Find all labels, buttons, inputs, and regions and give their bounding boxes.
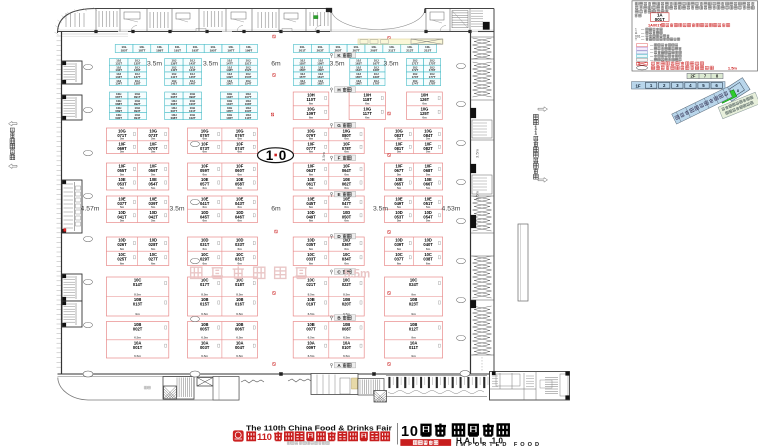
svg-text:004T: 004T bbox=[235, 345, 245, 350]
svg-text:8.5m: 8.5m bbox=[201, 292, 208, 296]
svg-text:008T: 008T bbox=[342, 327, 352, 332]
svg-text:001T: 001T bbox=[655, 17, 665, 22]
svg-text:6m: 6m bbox=[271, 206, 281, 213]
svg-text:5m: 5m bbox=[120, 172, 125, 176]
svg-text:146T: 146T bbox=[189, 82, 196, 86]
svg-text:110: 110 bbox=[257, 432, 272, 443]
svg-text:9m: 9m bbox=[411, 354, 416, 358]
svg-text:6m: 6m bbox=[344, 137, 349, 141]
svg-text:3.5m: 3.5m bbox=[383, 61, 398, 68]
svg-text:6m: 6m bbox=[238, 247, 243, 251]
svg-text:5m: 5m bbox=[397, 205, 402, 209]
svg-text:5m: 5m bbox=[397, 137, 402, 141]
svg-text:012T: 012T bbox=[409, 327, 419, 332]
svg-text:199T: 199T bbox=[245, 49, 252, 53]
svg-text:6m: 6m bbox=[151, 247, 156, 251]
svg-text:195T: 195T bbox=[210, 49, 217, 53]
svg-text:213T: 213T bbox=[406, 49, 413, 53]
svg-text:6.5m: 6.5m bbox=[308, 312, 315, 316]
svg-text:010T: 010T bbox=[342, 345, 352, 350]
svg-text:106T: 106T bbox=[226, 116, 233, 120]
svg-text:1.5m: 1.5m bbox=[728, 65, 738, 70]
svg-text:007T: 007T bbox=[306, 327, 316, 332]
svg-text:3.5m: 3.5m bbox=[329, 61, 344, 68]
svg-text:6m: 6m bbox=[238, 137, 243, 141]
svg-text:6m: 6m bbox=[203, 186, 208, 190]
svg-text:4.57m: 4.57m bbox=[81, 206, 100, 213]
svg-text:6m: 6m bbox=[344, 186, 349, 190]
svg-text:5m: 5m bbox=[426, 172, 431, 176]
svg-text:5m: 5m bbox=[426, 137, 431, 141]
svg-text:142T: 142T bbox=[171, 82, 178, 86]
svg-text:5m: 5m bbox=[151, 149, 156, 153]
svg-text:5m: 5m bbox=[120, 218, 125, 222]
svg-text:018T: 018T bbox=[235, 282, 245, 287]
svg-text:6m: 6m bbox=[238, 149, 243, 153]
svg-text:6.5m: 6.5m bbox=[134, 354, 141, 358]
svg-text:3.5m: 3.5m bbox=[147, 61, 162, 68]
svg-text:187T: 187T bbox=[138, 49, 145, 53]
svg-text:011T: 011T bbox=[409, 345, 419, 350]
svg-text:6m: 6m bbox=[238, 261, 243, 265]
svg-text:6m: 6m bbox=[120, 261, 125, 265]
svg-text:6m: 6m bbox=[309, 149, 314, 153]
svg-text:6m: 6m bbox=[203, 137, 208, 141]
svg-text:020T: 020T bbox=[342, 302, 352, 307]
svg-text:185T: 185T bbox=[121, 49, 128, 53]
svg-text:6m: 6m bbox=[397, 247, 402, 251]
svg-text:209T: 209T bbox=[370, 49, 377, 53]
svg-text:6.5m: 6.5m bbox=[308, 336, 315, 340]
svg-text:024T: 024T bbox=[409, 282, 419, 287]
svg-text:5m: 5m bbox=[397, 186, 402, 190]
svg-text:6m: 6m bbox=[309, 218, 314, 222]
svg-text:150T: 150T bbox=[226, 82, 233, 86]
svg-text:6m: 6m bbox=[151, 261, 156, 265]
svg-text:5m: 5m bbox=[151, 186, 156, 190]
svg-text:178T: 178T bbox=[429, 82, 436, 86]
svg-text:6m: 6m bbox=[309, 102, 314, 106]
svg-text:022T: 022T bbox=[342, 282, 352, 287]
svg-text:6m: 6m bbox=[309, 137, 314, 141]
svg-text:10: 10 bbox=[401, 424, 418, 440]
svg-text:6m: 6m bbox=[397, 261, 402, 265]
svg-text:019T: 019T bbox=[306, 302, 316, 307]
svg-text:013T: 013T bbox=[133, 302, 143, 307]
svg-text:6.5m: 6.5m bbox=[343, 336, 350, 340]
svg-text:6m: 6m bbox=[365, 102, 370, 106]
svg-text:6m: 6m bbox=[309, 172, 314, 176]
svg-text:4.53m: 4.53m bbox=[442, 206, 461, 213]
svg-text:5m: 5m bbox=[426, 205, 431, 209]
svg-text:6m: 6m bbox=[203, 205, 208, 209]
svg-text:3.5m: 3.5m bbox=[169, 206, 184, 213]
svg-text:6m: 6m bbox=[309, 186, 314, 190]
svg-text:8.5m: 8.5m bbox=[308, 292, 315, 296]
svg-text:6.5m: 6.5m bbox=[343, 354, 350, 358]
svg-text:6m: 6m bbox=[309, 261, 314, 265]
svg-text:6m: 6m bbox=[203, 261, 208, 265]
svg-text:6.5m: 6.5m bbox=[201, 312, 208, 316]
svg-text:215T: 215T bbox=[424, 49, 431, 53]
svg-text:9m: 9m bbox=[411, 312, 416, 316]
svg-text:203T: 203T bbox=[317, 49, 324, 53]
svg-text:005T: 005T bbox=[200, 327, 210, 332]
svg-text:191T: 191T bbox=[174, 49, 181, 53]
svg-text:6.5m: 6.5m bbox=[236, 312, 243, 316]
svg-text:5m: 5m bbox=[397, 149, 402, 153]
svg-text:5m: 5m bbox=[120, 137, 125, 141]
svg-text:6m: 6m bbox=[238, 186, 243, 190]
svg-text:6m: 6m bbox=[238, 172, 243, 176]
svg-text:170T: 170T bbox=[373, 82, 380, 86]
svg-text:3.5m: 3.5m bbox=[475, 148, 480, 158]
svg-text:6m: 6m bbox=[344, 205, 349, 209]
svg-text:023T: 023T bbox=[409, 302, 419, 307]
svg-text:6m: 6m bbox=[309, 115, 314, 119]
svg-text:021T: 021T bbox=[306, 282, 316, 287]
svg-text:5m: 5m bbox=[426, 186, 431, 190]
svg-text:9m: 9m bbox=[411, 336, 416, 340]
svg-text:6.5m: 6.5m bbox=[201, 336, 208, 340]
svg-text:162T: 162T bbox=[317, 82, 324, 86]
svg-text:1: 1 bbox=[266, 148, 274, 163]
svg-text:006T: 006T bbox=[235, 327, 245, 332]
svg-text:134T: 134T bbox=[115, 82, 122, 86]
svg-text:5m: 5m bbox=[151, 218, 156, 222]
svg-text:1: 1 bbox=[534, 131, 537, 137]
svg-text:6m: 6m bbox=[238, 205, 243, 209]
svg-text:6m: 6m bbox=[426, 247, 431, 251]
svg-text:E: E bbox=[337, 192, 340, 197]
svg-text:3.5m: 3.5m bbox=[475, 190, 480, 200]
svg-text:6m: 6m bbox=[426, 261, 431, 265]
svg-text:6m: 6m bbox=[309, 205, 314, 209]
svg-text:F: F bbox=[338, 156, 341, 161]
svg-text:9m: 9m bbox=[135, 312, 140, 316]
svg-text:8: 8 bbox=[737, 89, 739, 93]
svg-text:5m: 5m bbox=[120, 205, 125, 209]
svg-text:6m: 6m bbox=[344, 247, 349, 251]
svg-text:094T: 094T bbox=[134, 116, 141, 120]
svg-text:5m: 5m bbox=[426, 218, 431, 222]
svg-text:3.5m: 3.5m bbox=[373, 206, 388, 213]
svg-text:211T: 211T bbox=[388, 49, 395, 53]
svg-text:189T: 189T bbox=[156, 49, 163, 53]
svg-text:201T: 201T bbox=[299, 49, 306, 53]
svg-text:001T: 001T bbox=[133, 345, 143, 350]
svg-text:090T: 090T bbox=[115, 116, 122, 120]
svg-text:6m: 6m bbox=[238, 218, 243, 222]
svg-text:017T: 017T bbox=[200, 282, 210, 287]
svg-text:3.5m: 3.5m bbox=[321, 151, 326, 161]
svg-text:002T: 002T bbox=[133, 327, 143, 332]
svg-text:8.5m: 8.5m bbox=[236, 292, 243, 296]
svg-text:098T: 098T bbox=[171, 116, 178, 120]
svg-text:5m: 5m bbox=[426, 149, 431, 153]
svg-text:2F: 2F bbox=[691, 74, 696, 79]
svg-text:6m: 6m bbox=[344, 172, 349, 176]
svg-text:6.5m: 6.5m bbox=[236, 336, 243, 340]
svg-text:6m: 6m bbox=[203, 172, 208, 176]
svg-text:014T: 014T bbox=[133, 282, 143, 287]
svg-text:5m: 5m bbox=[151, 172, 156, 176]
svg-text:6m: 6m bbox=[309, 247, 314, 251]
svg-text:138T: 138T bbox=[134, 82, 141, 86]
svg-text:T: T bbox=[635, 38, 637, 42]
svg-text:6.5m: 6.5m bbox=[201, 354, 208, 358]
svg-text:166T: 166T bbox=[355, 82, 362, 86]
svg-text:110T: 110T bbox=[245, 116, 252, 120]
svg-text:6m: 6m bbox=[365, 115, 370, 119]
svg-text:154T: 154T bbox=[245, 82, 252, 86]
svg-text:016T: 016T bbox=[235, 302, 245, 307]
svg-text:6m: 6m bbox=[344, 149, 349, 153]
svg-text:1F: 1F bbox=[635, 83, 640, 88]
svg-text:015T: 015T bbox=[200, 302, 210, 307]
svg-text:6m: 6m bbox=[120, 247, 125, 251]
svg-text:003T: 003T bbox=[200, 345, 210, 350]
svg-text:102T: 102T bbox=[189, 116, 196, 120]
svg-text:3.5m: 3.5m bbox=[203, 61, 218, 68]
svg-text:193T: 193T bbox=[192, 49, 199, 53]
svg-text:6m: 6m bbox=[271, 61, 281, 68]
svg-text:0: 0 bbox=[279, 148, 287, 163]
svg-text:197T: 197T bbox=[227, 49, 234, 53]
svg-text:5m: 5m bbox=[120, 149, 125, 153]
svg-text:6m: 6m bbox=[344, 261, 349, 265]
svg-text:G: G bbox=[337, 123, 341, 128]
svg-text:8.5m: 8.5m bbox=[343, 292, 350, 296]
svg-text:158T: 158T bbox=[299, 82, 306, 86]
svg-text:6m: 6m bbox=[344, 218, 349, 222]
svg-text:5m: 5m bbox=[120, 186, 125, 190]
svg-text:6m: 6m bbox=[203, 149, 208, 153]
svg-text:8.5m: 8.5m bbox=[134, 292, 141, 296]
svg-text:5.5m: 5.5m bbox=[344, 269, 370, 281]
svg-text:6.5m: 6.5m bbox=[134, 336, 141, 340]
svg-text:6m: 6m bbox=[203, 247, 208, 251]
svg-text:1A001T: 1A001T bbox=[648, 23, 662, 28]
svg-text:5m: 5m bbox=[397, 218, 402, 222]
svg-text:5m: 5m bbox=[397, 172, 402, 176]
svg-text:6.5m: 6.5m bbox=[236, 354, 243, 358]
svg-text:6m: 6m bbox=[203, 218, 208, 222]
svg-text:174T: 174T bbox=[412, 82, 419, 86]
svg-text:5m: 5m bbox=[151, 137, 156, 141]
svg-text:6.5m: 6.5m bbox=[308, 354, 315, 358]
svg-text:6m: 6m bbox=[422, 115, 427, 119]
svg-text:9m: 9m bbox=[411, 292, 416, 296]
svg-text:009T: 009T bbox=[306, 345, 316, 350]
svg-text:5m: 5m bbox=[151, 205, 156, 209]
svg-text:6m: 6m bbox=[422, 102, 427, 106]
